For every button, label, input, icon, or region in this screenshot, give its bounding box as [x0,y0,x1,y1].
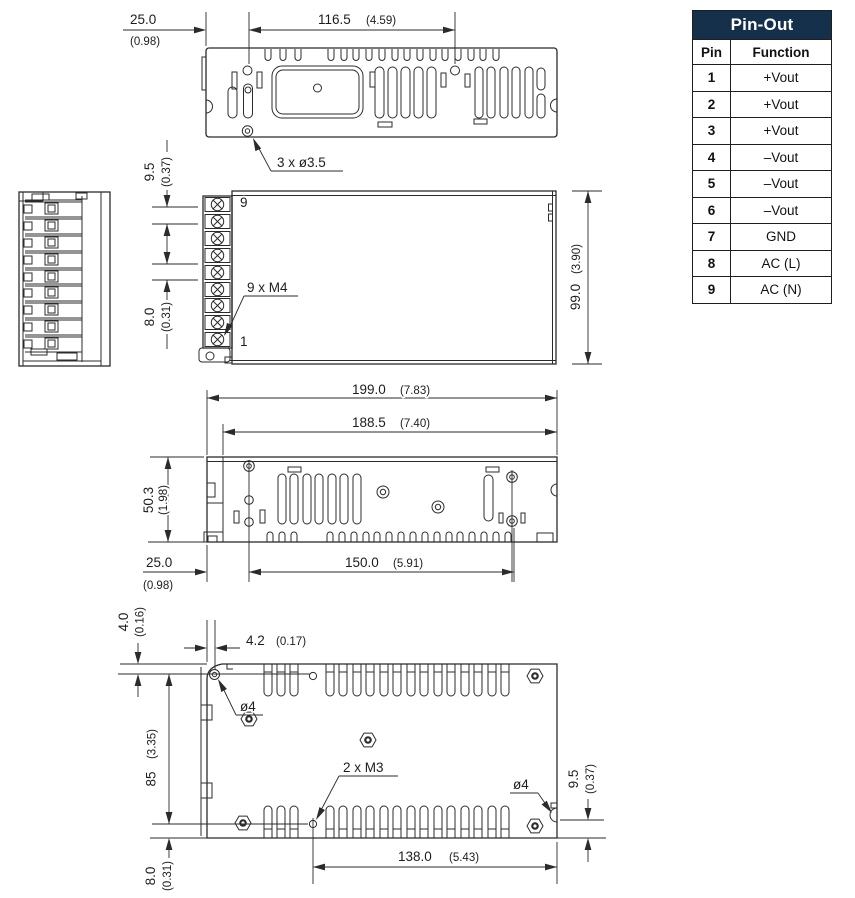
callout-terminals: 9 x M4 [247,280,288,295]
bottom-view-drawing [201,664,557,838]
pin-function: –Vout [731,171,832,198]
dim-bottom-95mm: 9.5 [566,770,581,789]
callout-dia4-right: ø4 [513,777,529,792]
dim-side-503in: (1.98) [158,485,170,515]
dim-side-199mm: 199.0 [352,382,386,397]
dim-top-1165mm: 116.5 [318,12,351,27]
dim-bottom-85in: (3.35) [147,729,159,759]
dim-side-503mm: 50.3 [141,487,156,513]
pin-number: 3 [693,118,731,145]
callout-top-holes: 3 x ø3.5 [277,155,326,170]
dim-front-80in: (0.31) [161,302,173,332]
mechanical-drawing-page: 25.0 (0.98) 116.5 (4.59) 3 x ø3.5 [0,0,855,898]
dim-side-1885in: (7.40) [400,418,430,430]
dim-bottom-42mm: 4.2 [246,633,265,648]
dim-top-25mm: 25.0 [130,12,156,27]
top-view-dimensions: 25.0 (0.98) 116.5 (4.59) 3 x ø3.5 [123,12,455,171]
pinout-row: 5–Vout [693,171,832,198]
callout-dia4-left: ø4 [240,699,256,714]
bottom-view-dimensions: 4.0 (0.16) 4.2 (0.17) ø4 85 (3.35) 2 x M… [116,607,606,891]
pin-number: 1 [693,65,731,92]
pin-function: +Vout [731,91,832,118]
pinout-row: 8AC (L) [693,250,832,277]
pin-number: 5 [693,171,731,198]
pinout-row: 9AC (N) [693,277,832,304]
pinout-title: Pin-Out [693,11,832,40]
front-view-drawing [199,191,556,364]
dim-bottom-80in: (0.31) [162,861,174,891]
dim-side-25mm: 25.0 [146,555,172,570]
pin-function: –Vout [731,144,832,171]
pinout-row: 7GND [693,224,832,251]
pin-number: 4 [693,144,731,171]
label-pin-1: 1 [240,334,248,349]
dim-bottom-80mm: 8.0 [143,867,158,886]
dim-bottom-85mm: 85 [144,771,159,786]
side-view-drawing [204,457,557,582]
dim-front-99in: (3.90) [571,244,583,274]
dim-front-80mm: 8.0 [142,308,157,327]
pin-number: 2 [693,91,731,118]
pinout-table: Pin-Out Pin Function 1+Vout 2+Vout 3+Vou… [692,10,832,304]
dim-side-150mm: 150.0 [345,555,379,570]
pin-function: GND [731,224,832,251]
pinout-row: 4–Vout [693,144,832,171]
pin-function: AC (L) [731,250,832,277]
callout-m3: 2 x M3 [343,760,384,775]
pin-function: +Vout [731,118,832,145]
pinout-row: 3+Vout [693,118,832,145]
pinout-col-pin: Pin [693,40,731,65]
pin-function: –Vout [731,197,832,224]
dim-bottom-138in: (5.43) [449,852,479,864]
dim-side-25in: (0.98) [143,580,173,592]
front-view-dimensions: 9.5 (0.37) 8.0 (0.31) 9 1 9 x M4 99.0 (3… [142,140,602,364]
dim-side-199in: (7.83) [400,385,430,397]
dim-bottom-42in: (0.17) [276,636,306,648]
dim-top-1165in: (4.59) [366,15,396,27]
dim-top-25in: (0.98) [130,36,160,48]
dim-front-99mm: 99.0 [568,284,583,310]
pinout-row: 1+Vout [693,65,832,92]
dim-front-95mm: 9.5 [142,163,157,182]
pinout-col-function: Function [731,40,832,65]
pin-number: 8 [693,250,731,277]
pin-number: 6 [693,197,731,224]
pin-number: 9 [693,277,731,304]
side-view-dimensions: 199.0 (7.83) 188.5 (7.40) 50.3 (1.98) 25… [141,382,557,592]
dim-bottom-95in: (0.37) [585,764,597,794]
dim-side-1885mm: 188.5 [352,415,386,430]
dim-bottom-138mm: 138.0 [398,849,432,864]
pinout-row: 6–Vout [693,197,832,224]
dim-bottom-40mm: 4.0 [116,613,131,632]
pin-function: AC (N) [731,277,832,304]
top-view-drawing [202,48,557,137]
label-pin-9: 9 [240,195,248,210]
dim-front-95in: (0.37) [161,157,173,187]
dim-bottom-40in: (0.16) [135,607,147,637]
pin-function: +Vout [731,65,832,92]
dim-side-150in: (5.91) [393,558,423,570]
pinout-row: 2+Vout [693,91,832,118]
end-view-drawing [19,192,110,366]
pin-number: 7 [693,224,731,251]
